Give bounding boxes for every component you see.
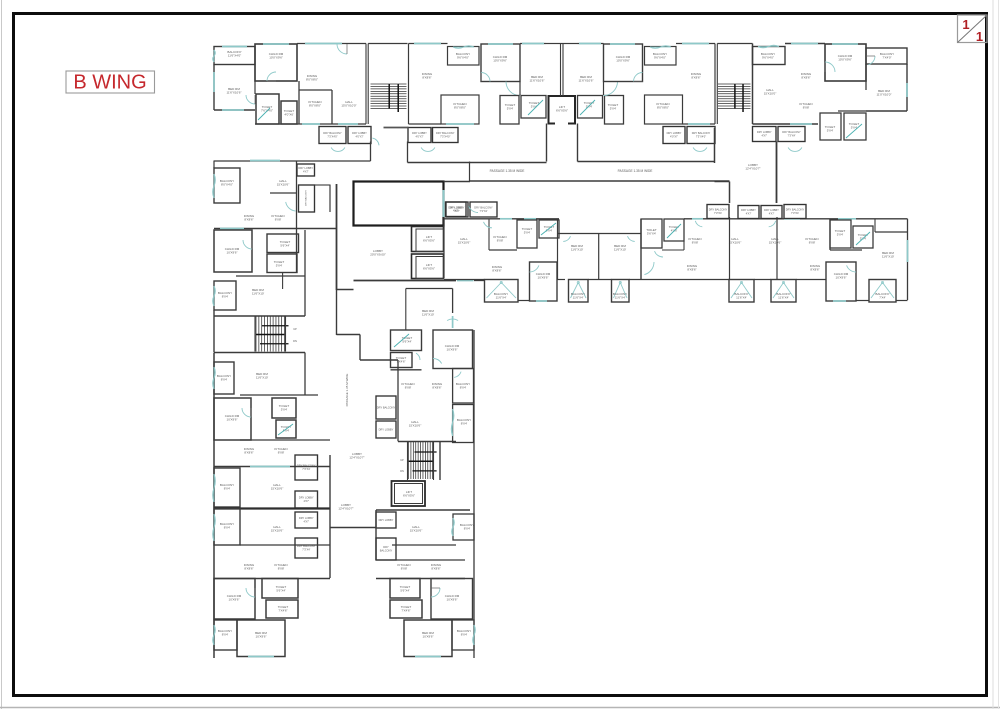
svg-text:7'3"X4': 7'3"X4' (302, 467, 310, 471)
svg-text:11'6"X10': 11'6"X10' (422, 312, 435, 316)
svg-text:7'X4': 7'X4' (879, 295, 886, 299)
svg-text:4'0"X6': 4'0"X6' (284, 112, 294, 116)
svg-text:11'6"X4': 11'6"X4' (573, 295, 584, 299)
svg-text:1: 1 (962, 17, 969, 32)
svg-text:4'X7': 4'X7' (303, 169, 309, 173)
svg-text:5'X4': 5'X4' (524, 230, 531, 234)
svg-text:DRY LOBBY: DRY LOBBY (757, 130, 772, 134)
svg-text:DRY LOBBY: DRY LOBBY (412, 131, 427, 135)
svg-text:8'X4': 8'X4' (224, 525, 231, 529)
svg-text:DRY BALCONY: DRY BALCONY (323, 131, 342, 135)
svg-text:9'6"X4'0": 9'6"X4'0" (457, 55, 469, 59)
svg-text:4'0"X7': 4'0"X7' (356, 134, 364, 138)
svg-text:11'6"X10': 11'6"X10' (256, 375, 269, 379)
svg-text:7'X4'6": 7'X4'6" (401, 608, 410, 612)
svg-text:DRY LOBBY: DRY LOBBY (450, 206, 465, 210)
svg-text:5'6"X4': 5'6"X4' (402, 339, 412, 343)
svg-text:10'X9'6": 10'X9'6" (227, 417, 238, 421)
svg-text:9'6"X4'0": 9'6"X4'0" (654, 55, 666, 59)
svg-text:8'X8'6": 8'X8'6" (687, 267, 696, 271)
svg-text:15'X10'6": 15'X10'6" (729, 240, 742, 244)
svg-text:10'0"X9'6": 10'0"X9'6" (269, 55, 283, 59)
svg-text:7'X4'6": 7'X4'6" (396, 359, 405, 363)
svg-text:DRY LOBBY: DRY LOBBY (379, 518, 394, 522)
svg-text:15'X10'6": 15'X10'6" (409, 423, 422, 427)
svg-text:4'X7': 4'X7' (454, 209, 460, 213)
svg-text:8'X4': 8'X4' (221, 377, 228, 381)
svg-text:8'X4': 8'X4' (460, 385, 467, 389)
svg-text:15'0"X10'0": 15'0"X10'0" (341, 103, 356, 107)
svg-text:11'6"X10': 11'6"X10' (614, 247, 627, 251)
svg-text:10'X9'6": 10'X9'6" (423, 634, 434, 638)
svg-text:DRY LOBBY: DRY LOBBY (298, 166, 313, 170)
svg-text:12'4"X10'7": 12'4"X10'7" (745, 166, 760, 170)
svg-text:DRY BALCONY: DRY BALCONY (377, 406, 396, 410)
svg-text:8'X8'6": 8'X8'6" (691, 75, 700, 79)
svg-text:DRY BALCONY: DRY BALCONY (782, 130, 801, 134)
svg-text:UP: UP (293, 327, 297, 331)
svg-text:15'X10'6": 15'X10'6" (769, 240, 782, 244)
svg-text:7'X4'0": 7'X4'0" (882, 55, 891, 59)
svg-text:DRY LOBBY: DRY LOBBY (379, 428, 394, 432)
svg-text:8'X4': 8'X4' (464, 526, 471, 530)
svg-text:8'X8': 8'X8' (692, 240, 699, 244)
svg-text:6'6"X5'6": 6'6"X5'6" (423, 238, 435, 242)
svg-text:DN: DN (293, 339, 297, 343)
svg-text:8'0"X8'0": 8'0"X8'0" (454, 105, 466, 109)
svg-text:5'6"X4': 5'6"X4' (276, 588, 286, 592)
svg-text:4'0"X7': 4'0"X7' (416, 134, 424, 138)
svg-text:5'6"X4': 5'6"X4' (647, 231, 657, 235)
svg-text:20'0"X9.00": 20'0"X9.00" (370, 252, 386, 256)
svg-text:PASSAGE 1.35 M WIDE: PASSAGE 1.35 M WIDE (490, 169, 525, 173)
svg-text:15'X10'6": 15'X10'6" (271, 528, 284, 532)
svg-text:10'X9'6": 10'X9'6" (836, 275, 847, 279)
svg-text:7'3"X4': 7'3"X4' (480, 209, 488, 213)
svg-text:7'3"X4': 7'3"X4' (302, 547, 310, 551)
svg-text:8'X8': 8'X8' (278, 566, 285, 570)
svg-text:10'X9'6": 10'X9'6" (538, 275, 549, 279)
svg-text:DRY BALCONY: DRY BALCONY (436, 131, 455, 135)
svg-text:8'X8': 8'X8' (497, 238, 504, 242)
svg-text:8'X4': 8'X4' (461, 421, 468, 425)
svg-text:5'6"X4': 5'6"X4' (280, 243, 290, 247)
svg-text:5'X4': 5'X4' (507, 106, 514, 110)
svg-text:DRY LOBBY: DRY LOBBY (764, 208, 779, 212)
svg-text:7'3"X4': 7'3"X4' (788, 133, 796, 137)
svg-text:8'X8'6": 8'X8'6" (801, 75, 810, 79)
svg-text:15'X10'6": 15'X10'6" (410, 528, 423, 532)
svg-text:DRY BALCONY: DRY BALCONY (305, 190, 308, 206)
svg-text:8'0"X8'0": 8'0"X8'0" (306, 77, 318, 81)
svg-text:DRY LOBBY: DRY LOBBY (299, 496, 314, 500)
svg-text:15'X10'0": 15'X10'0" (764, 91, 777, 95)
svg-text:7'X4'6": 7'X4'6" (278, 608, 287, 612)
svg-text:12'4"X10'7": 12'4"X10'7" (338, 506, 353, 510)
svg-text:DRY BALCONY: DRY BALCONY (786, 208, 805, 212)
svg-text:5'X4': 5'X4' (276, 263, 283, 267)
svg-text:6'6"X5'6": 6'6"X5'6" (403, 493, 415, 497)
svg-text:6'6"X5'6": 6'6"X5'6" (556, 108, 568, 112)
svg-text:7'3"X4': 7'3"X4' (714, 211, 722, 215)
svg-text:8'X4': 8'X4' (222, 294, 229, 298)
svg-text:7'3"X4': 7'3"X4' (791, 211, 799, 215)
svg-text:5'X4': 5'X4' (827, 128, 834, 132)
svg-text:8'X8': 8'X8' (278, 450, 285, 454)
svg-text:11'6"X10': 11'6"X10' (571, 247, 584, 251)
svg-text:8'X8'6": 8'X8'6" (810, 267, 819, 271)
svg-text:4'X7': 4'X7' (303, 499, 309, 503)
svg-text:PASSAGE 1.35 M WIDE: PASSAGE 1.35 M WIDE (618, 169, 653, 173)
svg-text:5'X4': 5'X4' (837, 232, 844, 236)
svg-text:PASSAGE 1.35 M WIDE: PASSAGE 1.35 M WIDE (345, 374, 349, 407)
svg-text:11'0"X10'0": 11'0"X10'0" (876, 92, 891, 96)
svg-text:10'0"X9'6": 10'0"X9'6" (493, 58, 507, 62)
svg-text:7'3"X4'0": 7'3"X4'0" (327, 134, 337, 138)
svg-text:15'X10'6": 15'X10'6" (271, 486, 284, 490)
svg-text:10'0"X9'6": 10'0"X9'6" (838, 57, 852, 61)
svg-text:11'6"X4': 11'6"X4' (615, 295, 626, 299)
svg-text:8'0"X4'0": 8'0"X4'0" (221, 182, 233, 186)
svg-text:8'X4': 8'X4' (222, 632, 229, 636)
svg-text:BALCONY: BALCONY (380, 548, 393, 552)
svg-text:4'X7': 4'X7' (761, 133, 767, 137)
svg-text:10'0"X9'6": 10'0"X9'6" (616, 58, 630, 62)
svg-text:DRY LOBBY: DRY LOBBY (299, 516, 314, 520)
svg-text:DRY BALCONY: DRY BALCONY (297, 464, 316, 468)
svg-text:4'X7': 4'X7' (303, 519, 309, 523)
svg-text:10'X9'6": 10'X9'6" (256, 634, 267, 638)
svg-text:11'6"X10'6": 11'6"X10'6" (226, 90, 241, 94)
svg-text:8'X8': 8'X8' (809, 240, 816, 244)
svg-text:5'6"X4': 5'6"X4' (400, 588, 410, 592)
svg-text:10'X9'6": 10'X9'6" (447, 597, 458, 601)
svg-text:11'6"X4': 11'6"X4' (496, 295, 507, 299)
svg-text:7'3"X4'0": 7'3"X4'0" (696, 134, 706, 138)
svg-text:11'6"X10'6": 11'6"X10'6" (578, 78, 593, 82)
svg-text:DRY LOBBY: DRY LOBBY (352, 131, 367, 135)
svg-text:7'3"X4'0": 7'3"X4'0" (440, 134, 450, 138)
svg-text:8'X8': 8'X8' (405, 385, 412, 389)
svg-text:DRY BALCONY: DRY BALCONY (692, 131, 711, 135)
svg-text:DRY BALCONY: DRY BALCONY (709, 208, 728, 212)
svg-text:4'X7': 4'X7' (746, 211, 752, 215)
svg-text:8'X8'6": 8'X8'6" (422, 75, 431, 79)
svg-text:DN: DN (400, 470, 404, 473)
svg-text:4'0"X7': 4'0"X7' (670, 134, 678, 138)
svg-text:5'X4': 5'X4' (610, 106, 617, 110)
svg-text:8'X8'6": 8'X8'6" (244, 217, 253, 221)
svg-text:1: 1 (976, 29, 983, 44)
svg-text:11'6"X10': 11'6"X10' (252, 291, 265, 295)
svg-text:11'6"X4'0": 11'6"X4'0" (228, 53, 241, 57)
svg-text:12'4"X10'7": 12'4"X10'7" (349, 455, 364, 459)
svg-text:8'X8': 8'X8' (803, 105, 810, 109)
svg-text:11'6"X10': 11'6"X10' (882, 254, 895, 258)
svg-text:DRY: DRY (383, 545, 389, 549)
svg-text:5'X4': 5'X4' (281, 407, 288, 411)
svg-text:8'X8'6": 8'X8'6" (431, 566, 440, 570)
svg-text:15'X10'6": 15'X10'6" (277, 182, 290, 186)
svg-text:10'X9'6": 10'X9'6" (447, 347, 458, 351)
svg-text:8'X8': 8'X8' (275, 217, 282, 221)
svg-text:8'X8'6": 8'X8'6" (492, 268, 501, 272)
svg-text:8'X8'6": 8'X8'6" (432, 385, 441, 389)
svg-text:11'6"X4': 11'6"X4' (778, 295, 789, 299)
svg-text:4'X7': 4'X7' (769, 211, 775, 215)
svg-text:10'X9'6": 10'X9'6" (229, 597, 240, 601)
svg-text:8'X8'6": 8'X8'6" (244, 566, 253, 570)
svg-text:8'0"X8'0": 8'0"X8'0" (657, 105, 669, 109)
svg-text:UP: UP (400, 459, 404, 462)
svg-text:6'6"X5'6": 6'6"X5'6" (423, 266, 435, 270)
svg-text:8'0"X8'0": 8'0"X8'0" (309, 103, 321, 107)
svg-text:8'X8'6": 8'X8'6" (244, 450, 253, 454)
svg-text:8'X4': 8'X4' (224, 486, 231, 490)
svg-text:15'X10'6": 15'X10'6" (458, 240, 471, 244)
svg-text:9'6"X4'0": 9'6"X4'0" (762, 55, 774, 59)
svg-text:B WING: B WING (73, 72, 146, 94)
svg-text:DRY LOBBY: DRY LOBBY (667, 131, 682, 135)
svg-text:11'6"X10'6": 11'6"X10'6" (529, 78, 544, 82)
svg-text:DRY LOBBY: DRY LOBBY (741, 208, 756, 212)
svg-text:10'X9'6": 10'X9'6" (227, 250, 238, 254)
svg-text:11'6"X4': 11'6"X4' (736, 295, 747, 299)
svg-text:8'X8': 8'X8' (401, 566, 408, 570)
svg-text:8'X4': 8'X4' (461, 632, 468, 636)
svg-text:DRY BALCONY: DRY BALCONY (474, 206, 493, 210)
